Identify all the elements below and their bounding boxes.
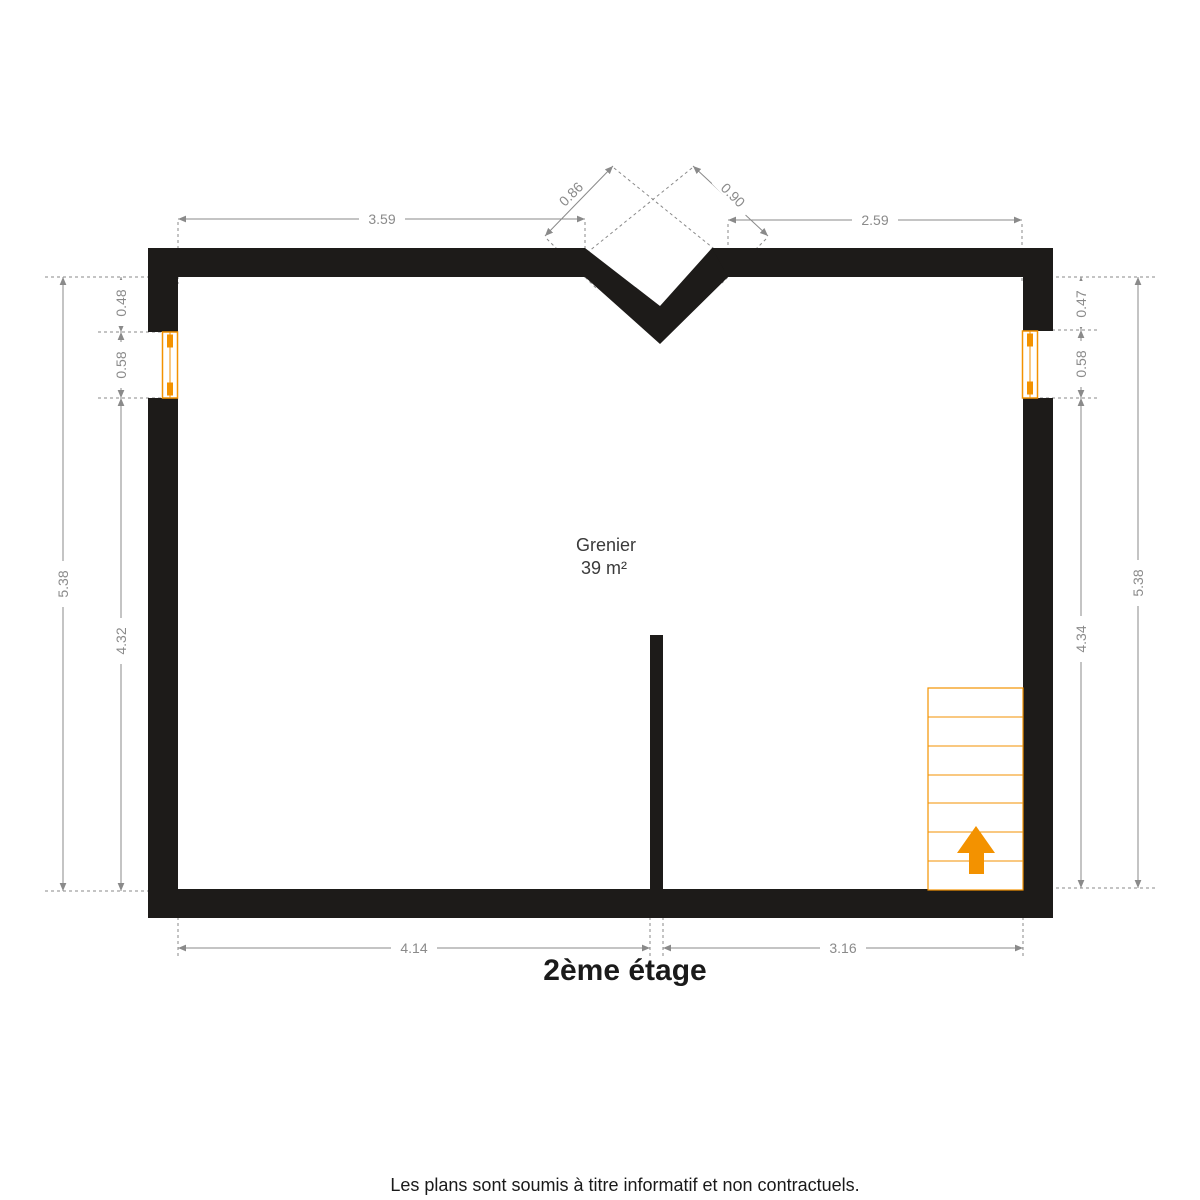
- dim-label-text: 4.34: [1073, 625, 1089, 652]
- dim-label-text: 5.38: [1130, 569, 1146, 596]
- footer-disclaimer: Les plans sont soumis à titre informatif…: [390, 1175, 859, 1195]
- dim-label-right-top: 0.47: [1073, 281, 1089, 327]
- window-mark: [167, 383, 173, 396]
- dim-label-text: 4.32: [113, 627, 129, 654]
- dim-label-right-bottom: 4.34: [1073, 616, 1089, 662]
- dim-label-text: 0.48: [113, 289, 129, 316]
- wall-left-lower: [148, 398, 178, 918]
- dim-label-text: 3.16: [829, 940, 856, 956]
- dim-label-text: 0.47: [1073, 290, 1089, 317]
- wall-notch-v: [585, 248, 728, 344]
- floor-title: 2ème étage: [543, 954, 706, 987]
- dim-label-left-top: 0.48: [113, 280, 129, 326]
- floor-plan-page: 3.59 2.59 0.86 0.90 5.38 0.48 0.58 4.32: [0, 0, 1200, 1200]
- window-left: [163, 332, 178, 398]
- dim-label-text: 2.59: [861, 212, 888, 228]
- room-area-label: 39 m²: [581, 558, 627, 578]
- window-mark: [1027, 334, 1033, 347]
- ext-line-notch-cross-right: [614, 168, 718, 252]
- wall-left-upper: [148, 248, 178, 332]
- wall-top-left-segment: [148, 248, 585, 277]
- staircase: [928, 688, 1023, 890]
- floor-plan-canvas: 3.59 2.59 0.86 0.90 5.38 0.48 0.58 4.32: [0, 0, 1200, 1200]
- wall-right-upper: [1023, 248, 1053, 331]
- window-mark: [1027, 382, 1033, 395]
- dim-label-text: 0.58: [1073, 350, 1089, 377]
- dim-label-top-right: 2.59: [852, 212, 898, 228]
- wall-interior-partition: [650, 635, 663, 891]
- dim-label-text: 0.58: [113, 351, 129, 378]
- dim-label-bottom-left: 4.14: [391, 940, 437, 956]
- walls: [148, 248, 1053, 918]
- dim-label-text: 5.38: [55, 570, 71, 597]
- dim-label-left-outer: 5.38: [55, 561, 71, 607]
- window-right: [1023, 331, 1038, 398]
- ext-line-notch-cross-left: [588, 168, 692, 252]
- dim-label-text: 3.59: [368, 211, 395, 227]
- wall-bottom: [148, 889, 1053, 918]
- dim-label-bottom-right: 3.16: [820, 940, 866, 956]
- dim-label-right-window: 0.58: [1073, 341, 1089, 387]
- dim-label-right-outer: 5.38: [1130, 560, 1146, 606]
- room-name-label: Grenier: [576, 535, 636, 555]
- dim-label-left-window: 0.58: [113, 342, 129, 388]
- dim-label-text: 4.14: [400, 940, 427, 956]
- wall-top-right-segment: [712, 248, 1053, 277]
- window-mark: [167, 335, 173, 348]
- dim-label-notch-right: 0.90: [711, 173, 755, 217]
- dim-label-left-bottom: 4.32: [113, 618, 129, 664]
- wall-right-lower: [1023, 398, 1053, 918]
- dim-label-top-left: 3.59: [359, 211, 405, 227]
